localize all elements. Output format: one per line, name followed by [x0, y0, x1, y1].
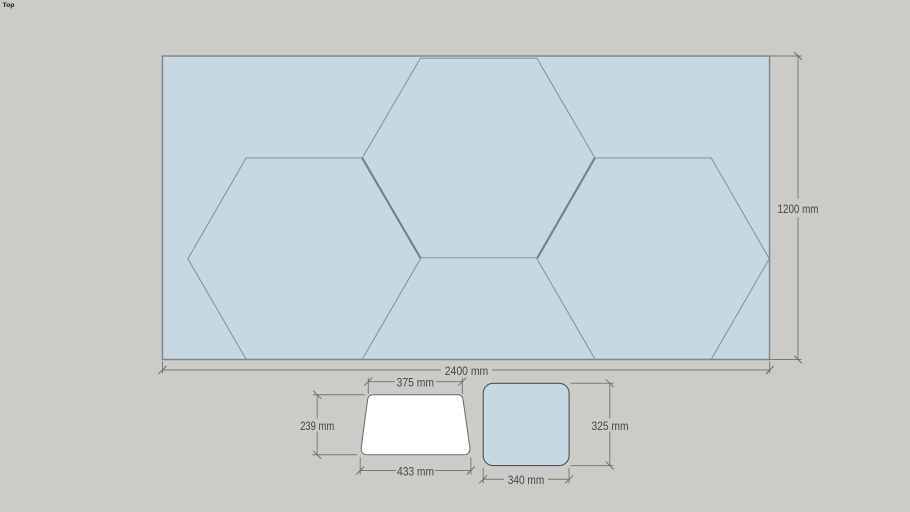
svg-text:239 mm: 239 mm: [300, 419, 334, 433]
svg-text:325 mm: 325 mm: [592, 419, 629, 433]
svg-text:340 mm: 340 mm: [508, 473, 545, 487]
svg-text:375 mm: 375 mm: [397, 376, 435, 390]
svg-text:2400 mm: 2400 mm: [445, 364, 489, 378]
svg-text:433 mm: 433 mm: [397, 464, 434, 478]
svg-text:1200 mm: 1200 mm: [778, 202, 819, 216]
svg-text:Top: Top: [3, 2, 15, 9]
